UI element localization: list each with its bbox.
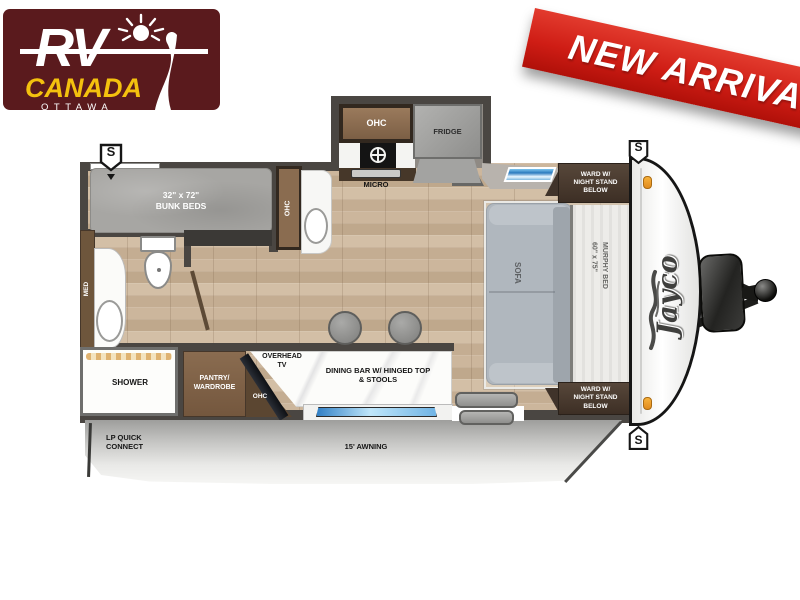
bath-sink [96, 300, 123, 342]
new-arrival-banner: NEW ARRIVAL [522, 8, 800, 141]
wall-kitchen-right [483, 96, 491, 168]
dining-bar-label: DINING BAR W/ HINGED TOP & STOOLS [310, 366, 446, 385]
new-arrival-label: NEW ARRIVAL [565, 26, 800, 123]
speaker-label: S [628, 140, 649, 154]
overhead-tv-label: OVERHEAD TV [258, 353, 306, 371]
speaker-pointer-icon [107, 174, 115, 180]
jayco-logo: Jayco [642, 225, 694, 365]
murphy-bed-footprint [484, 201, 634, 389]
speaker-badge: S [628, 139, 649, 165]
wall-kitchen-top [331, 96, 491, 104]
awning [85, 420, 622, 484]
hitch-ball [754, 279, 777, 302]
burner-icon [370, 147, 386, 163]
front-window-glass [506, 169, 554, 180]
logo-rv-text: RV [35, 17, 104, 79]
entry-step [459, 410, 514, 425]
front-window [504, 167, 557, 182]
wardrobe-bottom: WARD W/ NIGHT STAND BELOW [558, 382, 633, 415]
stool [388, 311, 422, 345]
lp-quick-connect-label: LP QUICK CONNECT [106, 433, 180, 452]
bunk-beds: 32" x 72" BUNK BEDS [90, 168, 272, 233]
speaker-badge: S [99, 143, 123, 172]
tv-ohc-label: OHC [247, 393, 273, 401]
logo-ottawa-text: OTTAWA [41, 102, 113, 110]
wall-kitchen-left [331, 96, 339, 168]
marker-light [643, 397, 652, 410]
shower-curtain [86, 353, 172, 360]
bunk-beds-label: 32" x 72" BUNK BEDS [156, 190, 207, 211]
fridge-label: FRIDGE [433, 127, 461, 136]
speaker-label: S [99, 144, 123, 159]
kitchen-sink [304, 208, 328, 244]
med-label: MED [83, 282, 91, 296]
propane-tank [698, 253, 746, 333]
stool [328, 311, 362, 345]
rv-floorplan-listing-image: RV CANADA OTTAWA NEW ARRIVAL 32" [0, 0, 800, 600]
sink-overhead-cabinet: OHC [276, 166, 302, 250]
pantry-label: PANTRY/ WARDROBE [194, 375, 236, 393]
microwave [351, 169, 401, 178]
speaker-label: S [628, 433, 649, 447]
fridge-lower-panel [413, 159, 481, 183]
kitchen-overhead-cabinet: OHC [339, 104, 414, 143]
fridge: FRIDGE [413, 104, 482, 159]
logo-canada-text: CANADA [25, 73, 142, 104]
awning-label: 15' AWNING [328, 442, 404, 451]
micro-label: MICRO [352, 180, 400, 189]
wardrobe-top: WARD W/ NIGHT STAND BELOW [558, 163, 633, 203]
rv-canada-logo: RV CANADA OTTAWA [3, 9, 220, 110]
wardrobe-top-label: WARD W/ NIGHT STAND BELOW [574, 171, 618, 195]
entry-step [455, 392, 518, 408]
speaker-badge: S [628, 425, 649, 451]
marker-light [643, 176, 652, 189]
toilet-tank [140, 236, 176, 252]
wardrobe-bottom-label: WARD W/ NIGHT STAND BELOW [574, 386, 618, 410]
dining-window [316, 407, 437, 417]
bunk-lower-edge [184, 230, 272, 246]
kitchen-ohc-label: OHC [367, 118, 387, 129]
jayco-logo-text: Jayco [653, 255, 684, 335]
sink-ohc-label: OHC [285, 200, 294, 216]
pantry-wardrobe: PANTRY/ WARDROBE [183, 351, 246, 417]
shower-label: SHOWER [90, 378, 170, 388]
stove [360, 143, 396, 168]
medicine-cabinet: MED [80, 230, 95, 348]
